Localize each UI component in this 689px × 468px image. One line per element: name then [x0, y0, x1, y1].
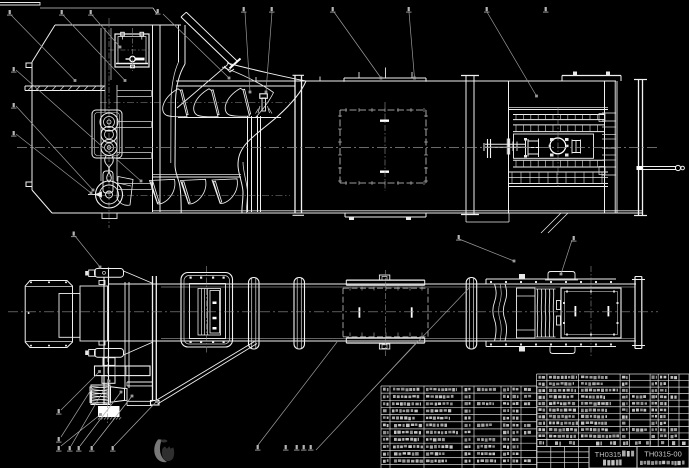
svg-text:TH0315: TH0315	[595, 450, 622, 459]
svg-text:TH0315-00: TH0315-00	[644, 450, 682, 459]
